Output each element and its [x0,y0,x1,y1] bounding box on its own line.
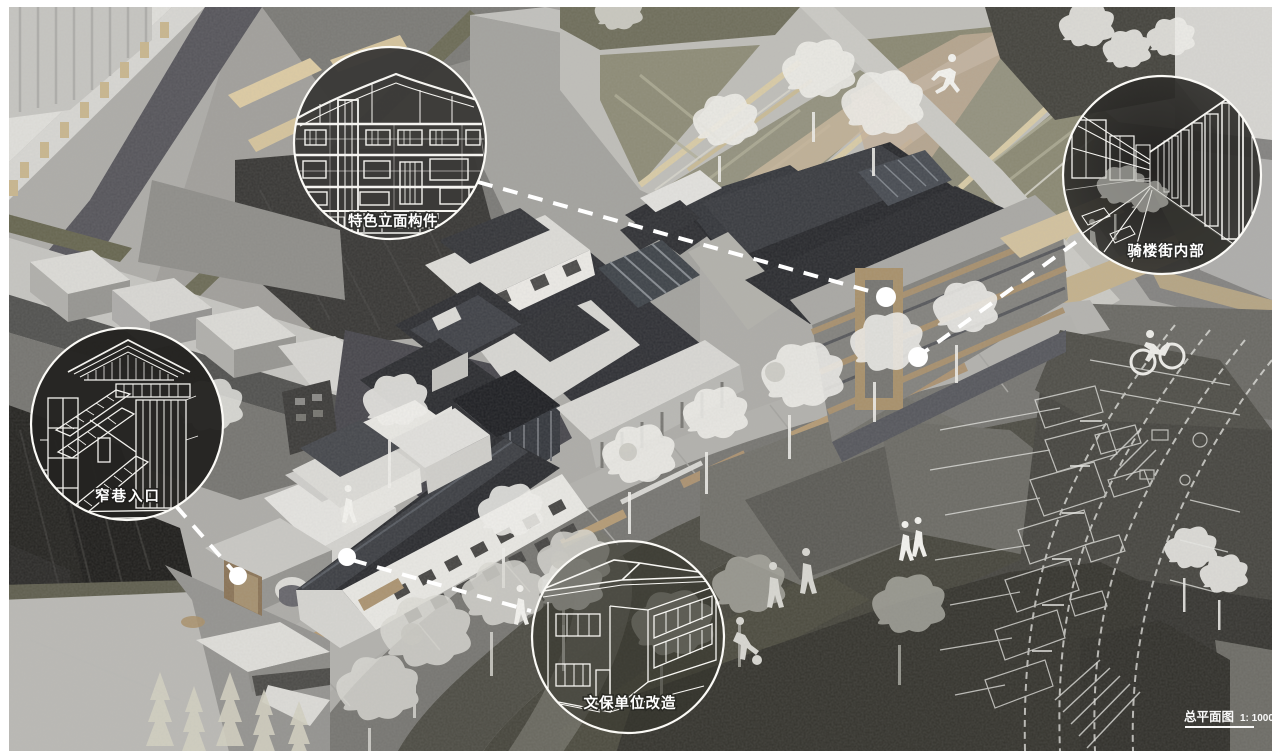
svg-text:特色立面构件: 特色立面构件 [348,212,438,230]
svg-text:骑楼街内部: 骑楼街内部 [1127,242,1205,260]
svg-text:窄巷入口: 窄巷入口 [95,487,161,505]
svg-text:文保单位改造: 文保单位改造 [584,694,677,712]
